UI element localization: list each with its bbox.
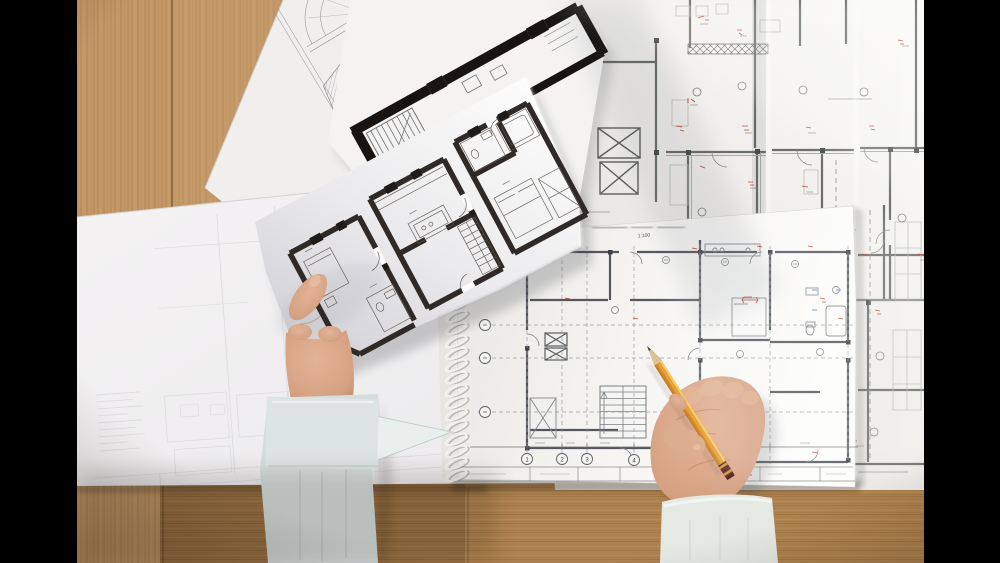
desk-photo-canvas: 1 2 3 4 1:100 (0, 0, 1000, 563)
lighting-overlay (77, 0, 926, 563)
letterbox-right (924, 0, 1000, 563)
desk-photo: 1 2 3 4 1:100 (0, 0, 1000, 563)
letterbox-left (0, 0, 77, 563)
